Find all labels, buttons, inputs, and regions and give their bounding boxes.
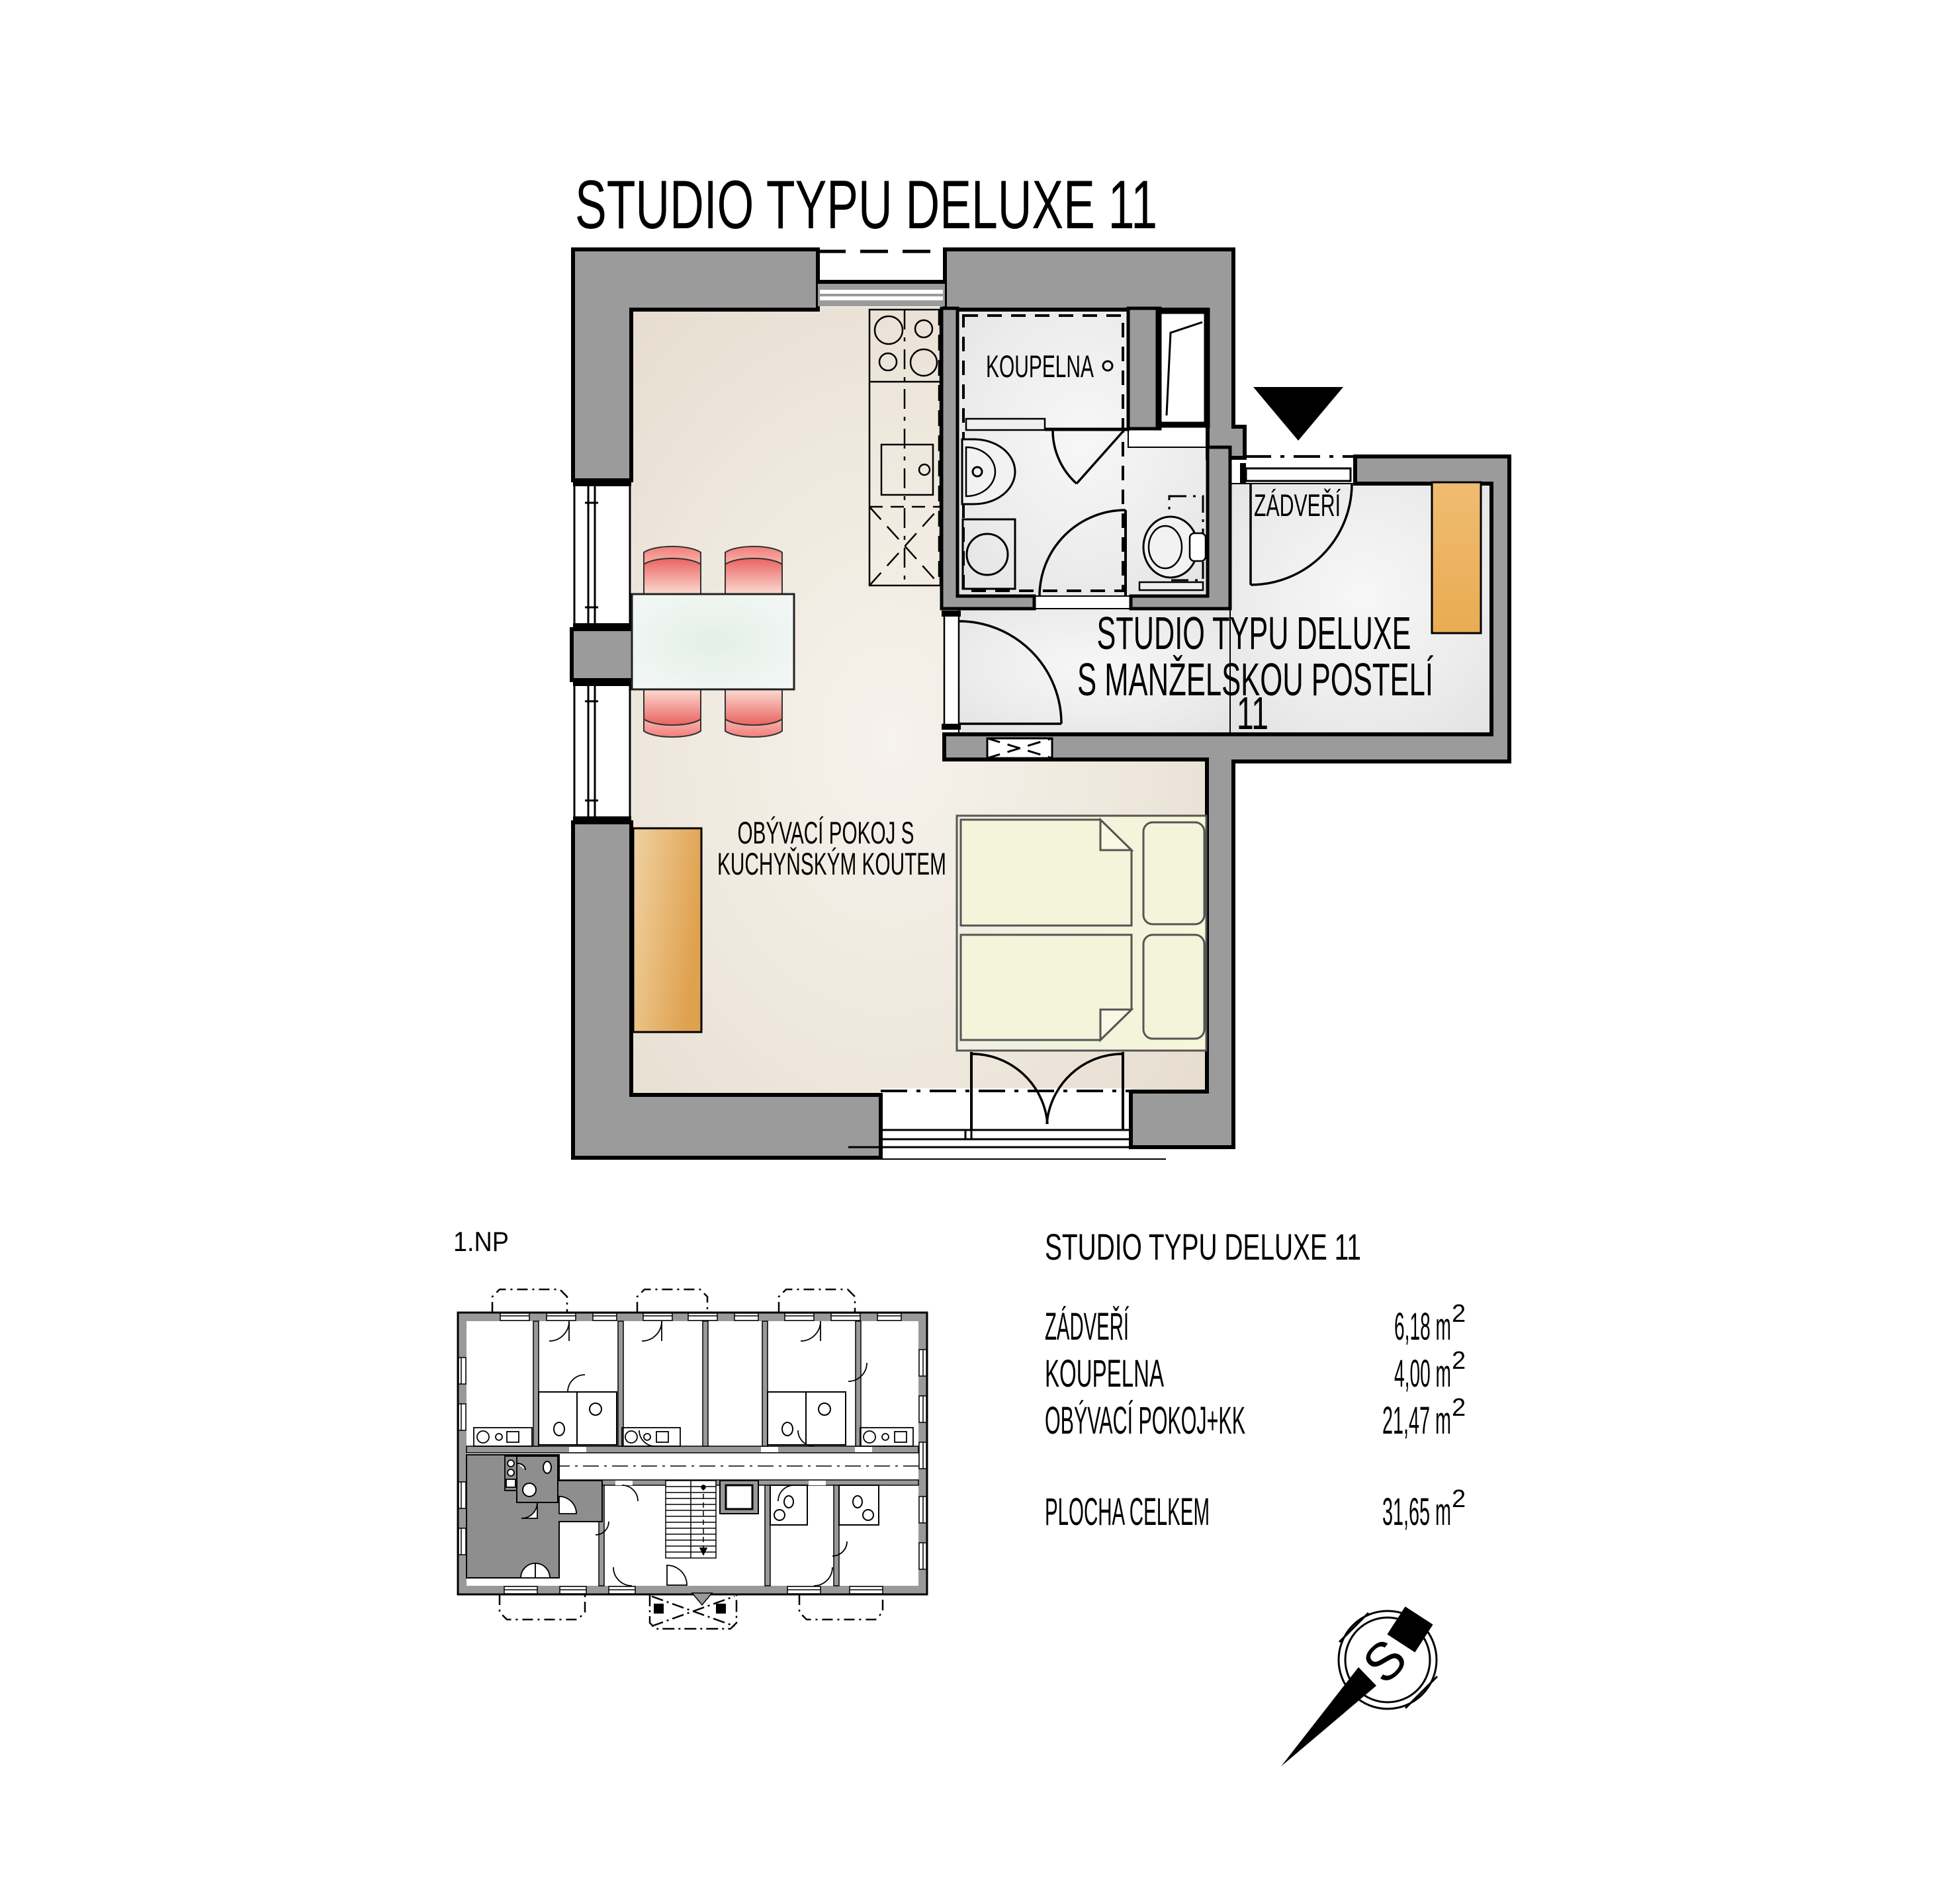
svg-text:2: 2: [1452, 1394, 1466, 1422]
svg-text:31,65 m: 31,65 m: [1382, 1491, 1451, 1534]
svg-text:11: 11: [1237, 687, 1268, 739]
svg-text:KOUPELNA: KOUPELNA: [1045, 1352, 1164, 1395]
svg-text:KUCHYŇSKÝM KOUTEM: KUCHYŇSKÝM KOUTEM: [717, 846, 946, 881]
svg-text:ZÁDVEŘÍ: ZÁDVEŘÍ: [1045, 1305, 1129, 1348]
svg-text:ZÁDVEŘÍ: ZÁDVEŘÍ: [1254, 488, 1341, 523]
svg-text:6,18 m: 6,18 m: [1394, 1305, 1451, 1348]
svg-text:STUDIO TYPU DELUXE: STUDIO TYPU DELUXE: [1097, 607, 1411, 659]
svg-text:1.NP: 1.NP: [453, 1226, 509, 1257]
svg-text:2: 2: [1452, 1347, 1466, 1375]
svg-text:STUDIO TYPU DELUXE 11: STUDIO TYPU DELUXE 11: [1045, 1226, 1361, 1268]
svg-text:21,47 m: 21,47 m: [1382, 1399, 1451, 1442]
svg-text:PLOCHA CELKEM: PLOCHA CELKEM: [1045, 1491, 1210, 1534]
svg-text:4,00 m: 4,00 m: [1394, 1352, 1451, 1395]
svg-text:KOUPELNA: KOUPELNA: [986, 349, 1094, 384]
svg-text:2: 2: [1452, 1300, 1466, 1328]
svg-text:OBÝVACÍ POKOJ S: OBÝVACÍ POKOJ S: [738, 815, 914, 850]
svg-text:STUDIO TYPU DELUXE 11: STUDIO TYPU DELUXE 11: [575, 167, 1157, 243]
svg-text:2: 2: [1452, 1485, 1466, 1513]
svg-text:OBÝVACÍ POKOJ+KK: OBÝVACÍ POKOJ+KK: [1045, 1399, 1245, 1442]
